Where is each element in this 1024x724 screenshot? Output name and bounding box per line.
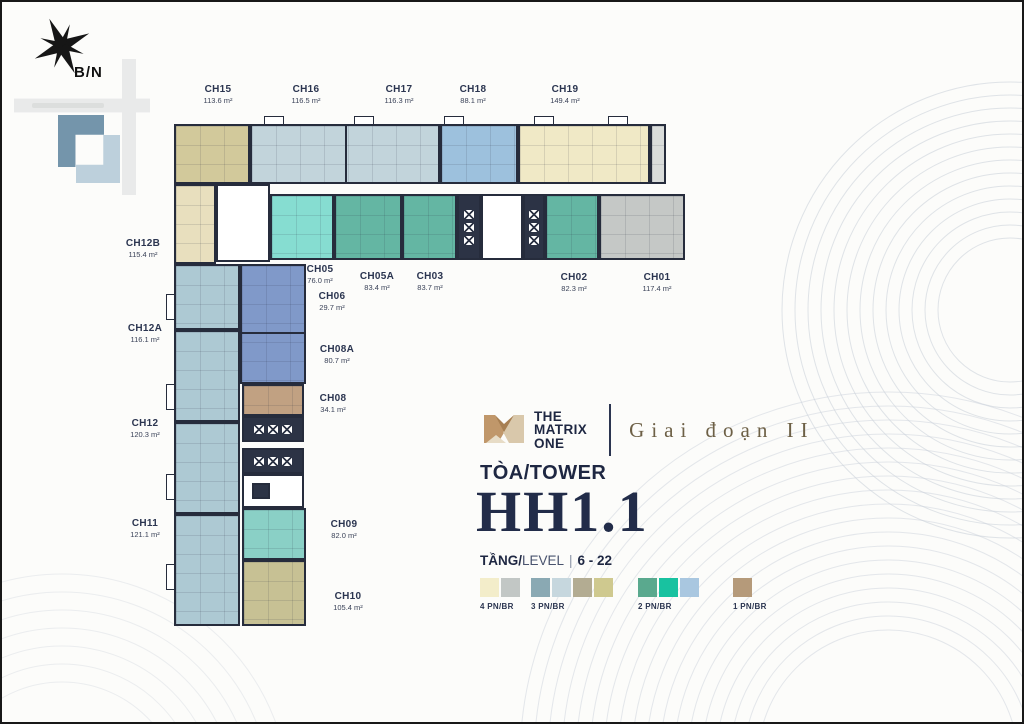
unit-area: 115.4 m² [126,250,160,259]
minimap-building-light [76,135,120,183]
elevator-icon [253,424,265,435]
minimap-building-dark [58,115,104,167]
unit-label-ch18: CH1888.1 m² [460,84,487,105]
unit-id: CH10 [333,591,363,602]
unit-area: 116.3 m² [384,96,413,105]
legend-group-3br: 3 PN/BR [531,578,613,611]
unit-block-ch19 [518,124,650,184]
unit-area: 113.6 m² [203,96,232,105]
unit-wall [345,126,347,182]
unit-area: 76.0 m² [307,276,334,285]
minimap-road-vertical [122,59,136,195]
legend-label: 1 PN/BR [733,602,767,611]
brand-wordmark: THE MATRIX ONE [534,410,587,450]
unit-block-ch12a [174,330,240,422]
compass-label: B/N [74,64,103,81]
unit-label-ch15: CH15113.6 m² [203,84,232,105]
floorplan-page: B/N [0,0,1024,724]
unit-area: 88.1 m² [460,96,487,105]
unit-label-ch06: CH0629.7 m² [319,291,346,312]
unit-block-ch15 [174,124,250,184]
tower-name: HH1.1 [476,478,649,545]
elevator-icon [463,222,475,233]
unit-id: CH11 [130,518,160,529]
unit-area: 117.4 m² [642,284,671,293]
unit-id: CH03 [417,271,444,282]
unit-id: CH12A [128,323,162,334]
unit-label-ch03: CH0383.7 m² [417,271,444,292]
phase-label: Giai đoạn II [629,418,814,443]
legend-color-swatch [659,578,678,597]
unit-id: CH01 [642,272,671,283]
unit-area: 83.7 m² [417,283,444,292]
unit-area: 116.5 m² [291,96,320,105]
unit-label-ch01: CH01117.4 m² [642,272,671,293]
unit-area: 34.1 m² [320,405,347,414]
legend-label: 4 PN/BR [480,602,520,611]
unit-block-ch03 [402,194,457,260]
brand-block: THE MATRIX ONE Giai đoạn II [482,404,815,456]
legend-group-4br: 4 PN/BR [480,578,520,611]
elevator-core [242,448,304,474]
unit-area: 116.1 m² [128,335,162,344]
unit-area: 29.7 m² [319,303,346,312]
minimap-road-label [32,103,104,108]
shaft-block [252,483,270,499]
elevator-icon [528,235,540,246]
unit-label-ch16: CH16116.5 m² [291,84,320,105]
brand-line: MATRIX [534,423,587,436]
unit-id: CH15 [203,84,232,95]
legend-color-swatch [552,578,571,597]
legend-color-swatch [573,578,592,597]
unit-label-ch12: CH12120.3 m² [130,418,160,439]
legend-group-1br: 1 PN/BR [733,578,767,611]
unit-block-ch01 [599,194,685,260]
elevator-icon [528,222,540,233]
legend-color-swatch [733,578,752,597]
unit-block-ch11 [174,514,240,626]
unit-id: CH12 [130,418,160,429]
matrix-one-logo-icon [482,410,526,450]
level-separator: | [569,553,573,568]
unit-area: 121.1 m² [130,530,160,539]
elevator-icon [463,235,475,246]
unit-label-ch12b: CH12B115.4 m² [126,238,160,259]
level-line: TẦNG/LEVEL|6 - 22 [480,553,612,568]
unit-id: CH02 [561,272,588,283]
legend-swatches [733,578,767,597]
unit-block-ch08 [242,384,304,416]
unit-block-ch06-ch08a [240,264,306,384]
core-block [216,184,270,262]
unit-id: CH05A [360,271,394,282]
unit-id: CH08A [320,344,354,355]
elevator-icon [267,424,279,435]
unit-label-ch02: CH0282.3 m² [561,272,588,293]
unit-area: 120.3 m² [130,430,160,439]
unit-area: 82.0 m² [331,531,358,540]
unit-wall [242,332,304,334]
elevator-icon [528,209,540,220]
elevator-icon [463,209,475,220]
elevator-core [242,416,304,442]
legend-swatches [531,578,613,597]
legend-swatches [638,578,699,597]
unit-block-ch02 [545,194,599,260]
legend-label: 3 PN/BR [531,602,613,611]
stair-block [650,124,666,184]
unit-id: CH05 [307,264,334,275]
elevator-core [457,194,481,260]
brand-line: ONE [534,437,587,450]
unit-block-ch12 [174,422,240,514]
legend-color-swatch [480,578,499,597]
unit-area: 149.4 m² [550,96,580,105]
elevator-icon [267,456,279,467]
unit-id: CH09 [331,519,358,530]
legend-color-swatch [531,578,550,597]
lobby-block [481,194,523,260]
legend-color-swatch [501,578,520,597]
legend: 4 PN/BR3 PN/BR2 PN/BR1 PN/BR [480,578,767,611]
level-label-vi: TẦNG/ [480,553,522,568]
unit-id: CH16 [291,84,320,95]
elevator-icon [253,456,265,467]
legend-color-swatch [680,578,699,597]
unit-label-ch19: CH19149.4 m² [550,84,580,105]
unit-label-ch08: CH0834.1 m² [320,393,347,414]
unit-label-ch09: CH0982.0 m² [331,519,358,540]
unit-id: CH12B [126,238,160,249]
lobby-block [242,474,304,508]
unit-label-ch05a: CH05A83.4 m² [360,271,394,292]
unit-block-ch10 [242,560,306,626]
legend-color-swatch [638,578,657,597]
elevator-icon [281,456,293,467]
legend-swatches [480,578,520,597]
unit-block-ch05 [270,194,334,260]
level-range: 6 - 22 [578,553,613,568]
unit-label-ch10: CH10105.4 m² [333,591,363,612]
unit-area: 83.4 m² [360,283,394,292]
unit-block-ch15-corner [174,184,216,264]
unit-label-ch12a: CH12A116.1 m² [128,323,162,344]
unit-id: CH06 [319,291,346,302]
legend-label: 2 PN/BR [638,602,699,611]
unit-area: 82.3 m² [561,284,588,293]
unit-area: 105.4 m² [333,603,363,612]
unit-block-ch09 [242,508,306,560]
legend-color-swatch [594,578,613,597]
unit-area: 80.7 m² [320,356,354,365]
unit-block-ch05a [334,194,402,260]
unit-block-ch12b [174,264,240,330]
elevator-core [523,194,545,260]
unit-label-ch11: CH11121.1 m² [130,518,160,539]
level-label-en: LEVEL [522,553,564,568]
unit-id: CH18 [460,84,487,95]
legend-group-2br: 2 PN/BR [638,578,699,611]
unit-id: CH19 [550,84,580,95]
unit-id: CH17 [384,84,413,95]
brand-divider [609,404,611,456]
decorative-arcs [2,2,1024,724]
unit-id: CH08 [320,393,347,404]
unit-label-ch08a: CH08A80.7 m² [320,344,354,365]
unit-label-ch17: CH17116.3 m² [384,84,413,105]
elevator-icon [281,424,293,435]
unit-label-ch05: CH0576.0 m² [307,264,334,285]
unit-block-ch18 [440,124,518,184]
